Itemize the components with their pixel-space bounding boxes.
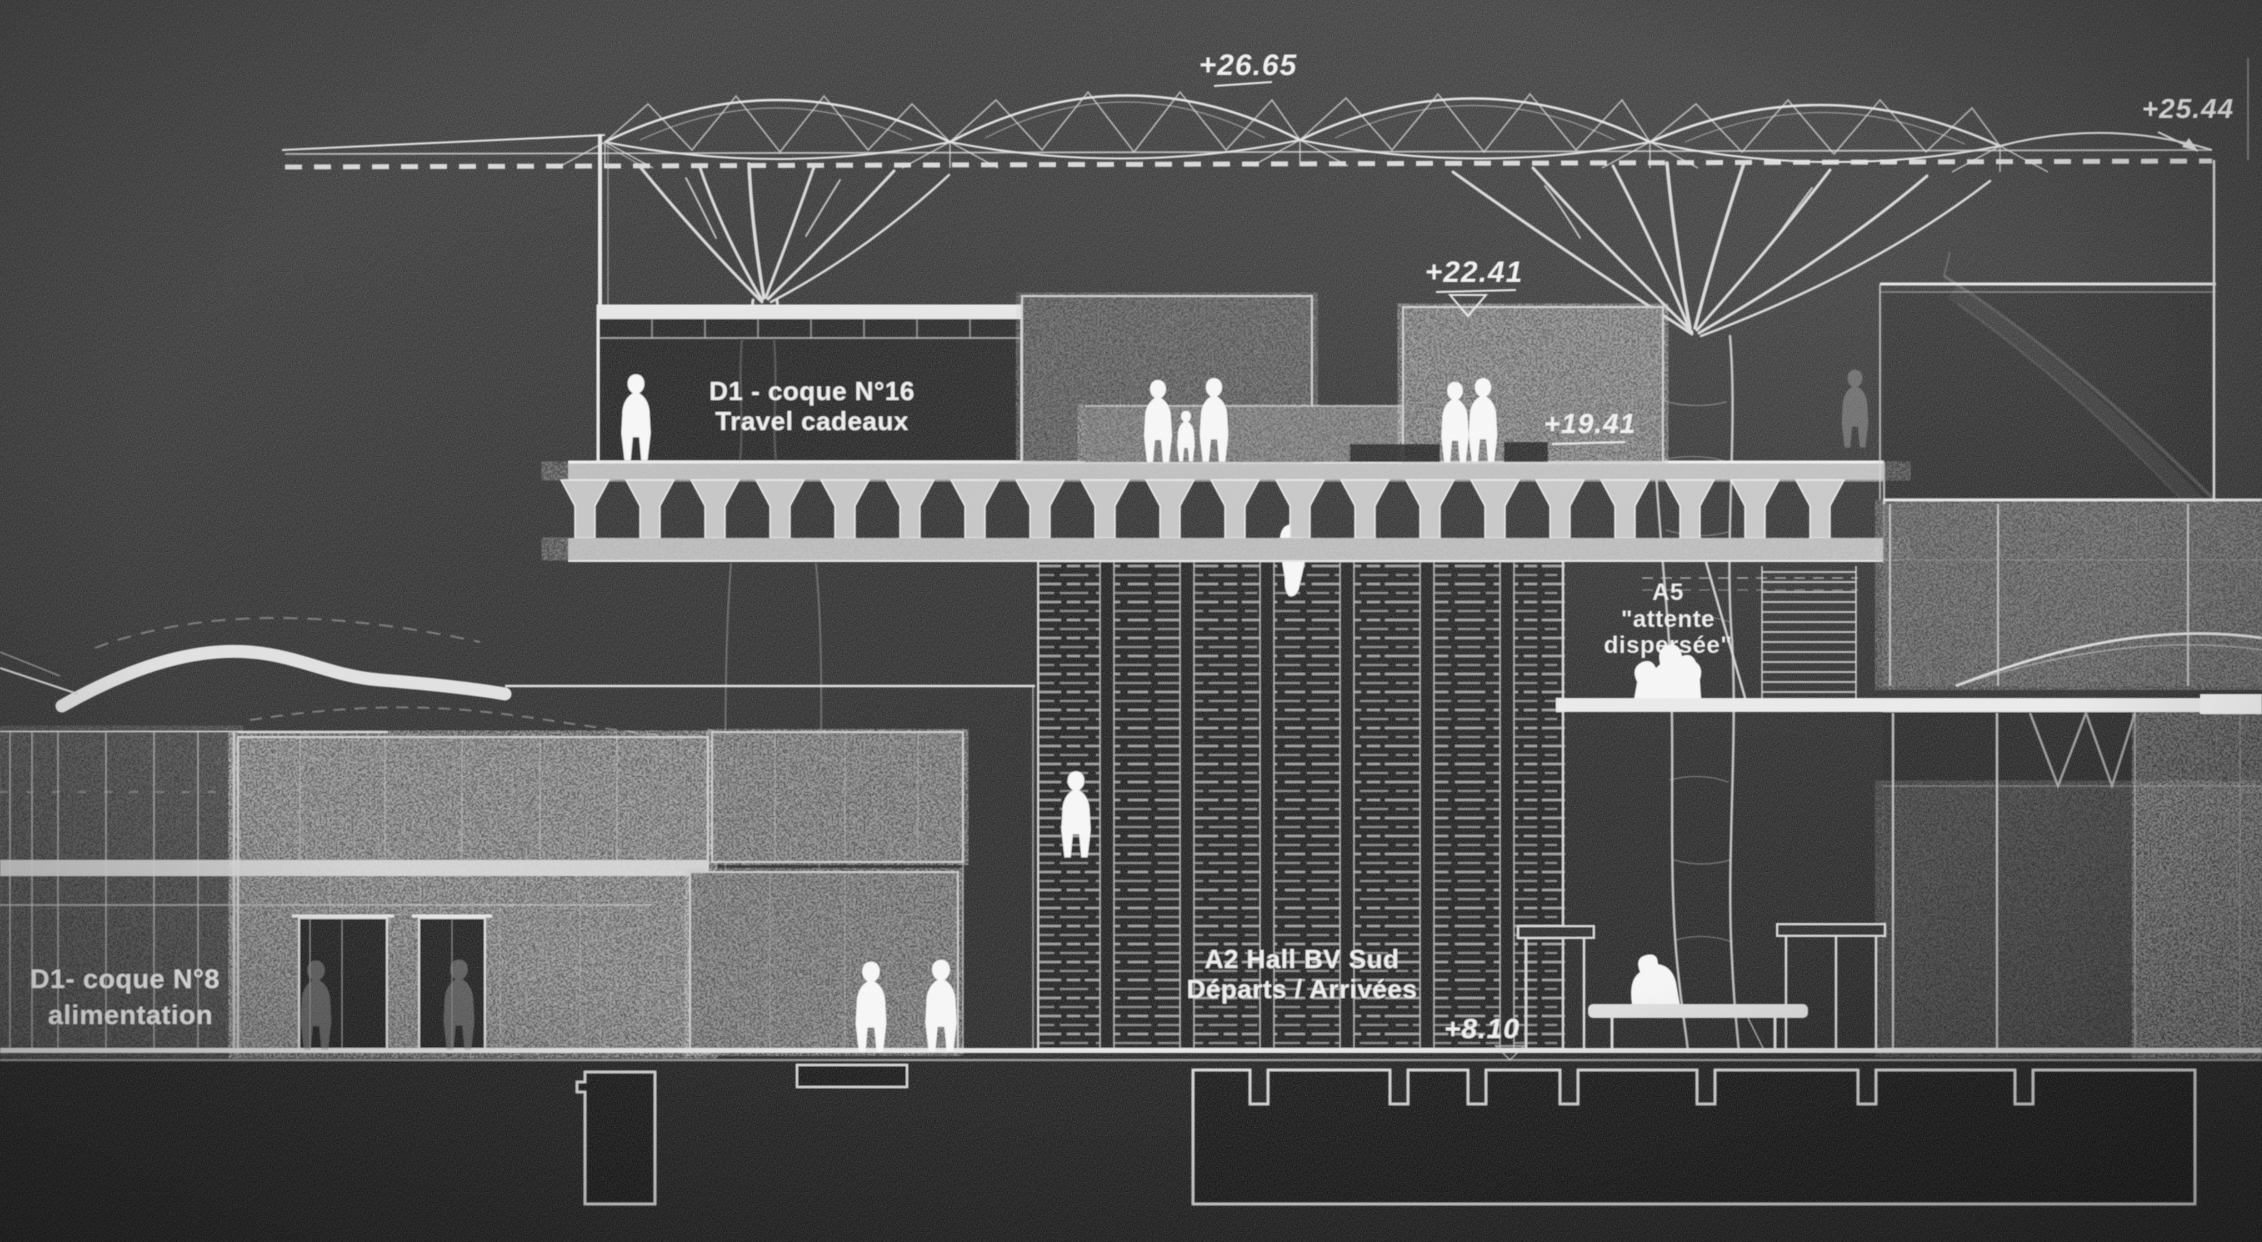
section-drawing: D1 - coque N°16 Travel cadeaux [0,0,2262,1242]
vignette-overlay [0,0,2262,1242]
architectural-section: D1 - coque N°16 Travel cadeaux [0,0,2262,1242]
